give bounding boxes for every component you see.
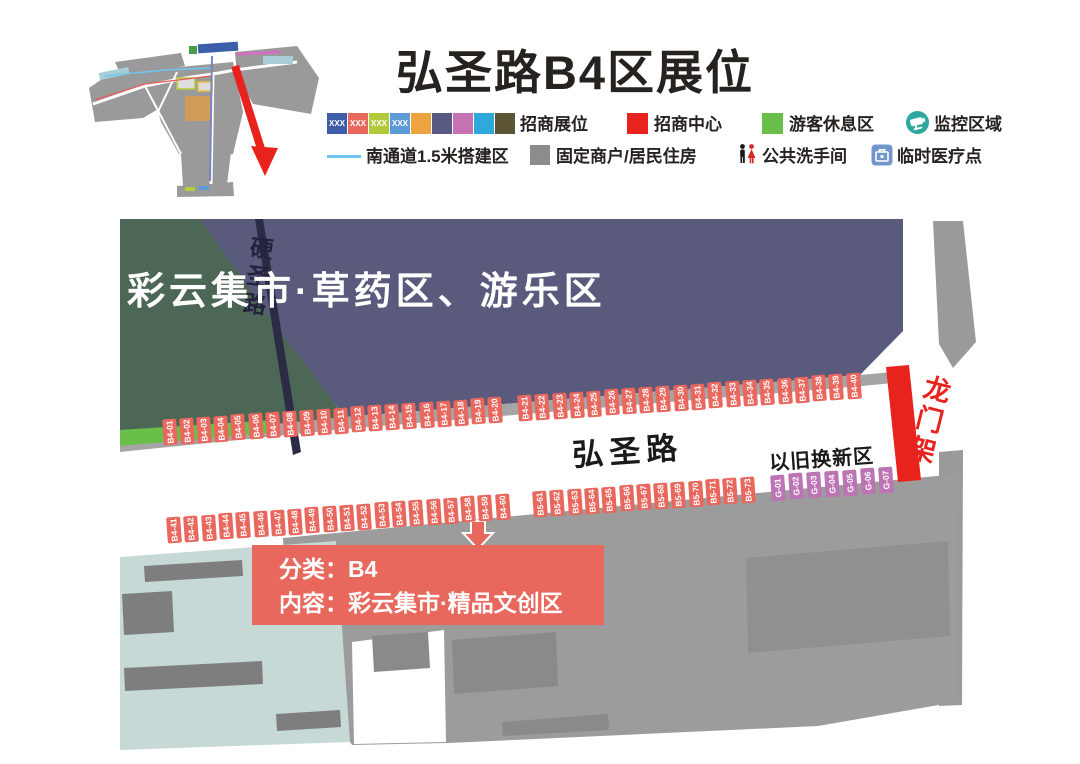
- booth-B5-62: B5-62: [549, 490, 565, 517]
- booth-label: B4-28: [640, 388, 652, 412]
- booth-G-07: G-07: [878, 467, 894, 494]
- booth-label: B4-14: [387, 405, 399, 429]
- booth-label: B4-31: [692, 385, 704, 409]
- booth-label: B4-48: [289, 510, 301, 534]
- booth-label: B4-38: [813, 377, 825, 401]
- booth-B4-41: B4-41: [166, 517, 182, 544]
- booth-B4-29: B4-29: [656, 385, 672, 412]
- booth-label: B4-12: [352, 407, 364, 431]
- booth-B5-70: B5-70: [688, 480, 704, 507]
- booth-label: B4-22: [537, 395, 549, 419]
- booth-B4-52: B4-52: [356, 503, 372, 530]
- booth-B4-24: B4-24: [569, 391, 585, 418]
- booth-label: B4-07: [267, 413, 279, 437]
- booth-B5-73: B5-73: [740, 476, 756, 503]
- booth-B4-16: B4-16: [419, 401, 435, 428]
- booth-label: B4-57: [445, 499, 457, 523]
- booth-label: B4-36: [779, 379, 791, 403]
- booth-B4-45: B4-45: [235, 512, 251, 539]
- booth-G-02: G-02: [788, 473, 804, 500]
- booth-label: B4-08: [284, 412, 296, 436]
- booth-B4-26: B4-26: [604, 389, 620, 416]
- booth-label: B4-32: [710, 384, 722, 408]
- booth-label: B4-30: [675, 386, 687, 410]
- booth-B4-55: B4-55: [408, 500, 424, 527]
- booth-G-06: G-06: [860, 468, 876, 495]
- booth-label: B5-67: [638, 485, 650, 509]
- booth-label: B4-41: [168, 518, 180, 542]
- booth-label: B4-16: [421, 403, 433, 427]
- booth-B4-20: B4-20: [487, 397, 503, 424]
- booth-label: B4-42: [186, 517, 198, 541]
- booth-B4-58: B4-58: [460, 496, 476, 523]
- booth-label: B4-15: [404, 404, 416, 428]
- booth-B4-59: B4-59: [478, 495, 494, 522]
- booth-label: B4-33: [727, 382, 739, 406]
- booth-B4-30: B4-30: [673, 384, 689, 411]
- booth-label: B4-46: [255, 512, 267, 536]
- booth-B5-67: B5-67: [636, 484, 652, 511]
- booth-label: B4-27: [623, 389, 635, 413]
- booth-label: B4-40: [848, 374, 860, 398]
- booth-B4-31: B4-31: [690, 383, 706, 410]
- booth-B4-09: B4-09: [299, 409, 315, 436]
- booth-label: G-01: [772, 478, 783, 498]
- booth-B5-66: B5-66: [619, 485, 635, 512]
- booth-B4-02: B4-02: [179, 417, 195, 444]
- booth-B4-06: B4-06: [248, 413, 264, 440]
- booth-B4-48: B4-48: [287, 508, 303, 535]
- booth-B4-51: B4-51: [339, 504, 355, 531]
- booth-G-01: G-01: [770, 474, 786, 501]
- booth-B4-33: B4-33: [725, 381, 741, 408]
- booth-B4-22: B4-22: [534, 394, 550, 421]
- right-block-upper: [933, 221, 976, 368]
- booth-label: B4-34: [744, 381, 756, 405]
- booth-label: B4-13: [369, 406, 381, 430]
- booth-B4-03: B4-03: [196, 416, 212, 443]
- booth-B4-32: B4-32: [707, 382, 723, 409]
- booth-label: B4-02: [181, 419, 193, 443]
- booth-B4-43: B4-43: [201, 514, 217, 541]
- booth-B5-71: B5-71: [705, 479, 721, 506]
- booth-label: B4-51: [341, 506, 353, 530]
- booth-label: B4-37: [796, 378, 808, 402]
- callout-category: 分类：B4: [279, 552, 604, 586]
- booth-B4-40: B4-40: [846, 373, 862, 400]
- booth-B5-61: B5-61: [532, 491, 548, 518]
- booth-B5-63: B5-63: [567, 489, 583, 516]
- booth-label: B5-62: [552, 491, 564, 515]
- booth-label: B4-58: [462, 498, 474, 522]
- booth-label: B4-11: [335, 409, 347, 432]
- booth-B4-15: B4-15: [402, 402, 418, 429]
- booth-label: B4-49: [307, 508, 319, 532]
- booth-map-poster: 弘圣路B4区展位 XXXXXXXXXXXX 招商展位 招商中心 游客休息区 监控…: [0, 0, 1080, 764]
- booth-label: B4-19: [472, 399, 484, 423]
- booth-label: B4-43: [203, 516, 215, 540]
- booth-B4-05: B4-05: [231, 414, 247, 441]
- booth-label: B4-29: [658, 387, 670, 411]
- booth-B4-49: B4-49: [305, 507, 321, 534]
- booth-G-03: G-03: [806, 472, 822, 499]
- booth-B4-14: B4-14: [384, 404, 400, 431]
- booth-label: B5-64: [586, 489, 598, 513]
- booth-B4-08: B4-08: [282, 411, 298, 438]
- booth-G-05: G-05: [842, 469, 858, 496]
- booth-B5-69: B5-69: [671, 481, 687, 508]
- booth-label: B5-61: [534, 492, 546, 516]
- booth-label: B4-52: [359, 505, 371, 529]
- booth-B4-44: B4-44: [218, 513, 234, 540]
- booth-B4-25: B4-25: [586, 390, 602, 417]
- booth-label: B4-20: [489, 398, 501, 422]
- booth-label: B4-39: [831, 375, 843, 399]
- booth-label: B4-05: [233, 416, 245, 440]
- booth-B4-46: B4-46: [253, 510, 269, 537]
- booth-B4-18: B4-18: [453, 399, 469, 426]
- booth-label: G-04: [826, 474, 837, 494]
- booth-B4-23: B4-23: [552, 392, 568, 419]
- booth-label: B4-04: [216, 417, 228, 441]
- booth-B4-11: B4-11: [333, 407, 349, 434]
- booth-label: B4-45: [237, 513, 249, 537]
- booth-B4-07: B4-07: [265, 412, 281, 439]
- booth-label: B5-68: [655, 484, 667, 508]
- booth-label: G-05: [844, 473, 855, 493]
- booth-label: B5-65: [603, 488, 615, 512]
- booth-B4-57: B4-57: [443, 497, 459, 524]
- booth-label: B5-69: [673, 483, 685, 507]
- booth-B4-53: B4-53: [374, 502, 390, 529]
- booth-label: B4-26: [606, 390, 618, 414]
- booth-B5-72: B5-72: [722, 478, 738, 505]
- booth-label: B4-60: [497, 495, 509, 519]
- booth-B5-65: B5-65: [601, 486, 617, 513]
- booth-G-04: G-04: [824, 470, 840, 497]
- booth-B4-60: B4-60: [495, 494, 511, 521]
- booth-label: B4-50: [324, 507, 336, 531]
- booth-label: G-03: [808, 475, 819, 495]
- booth-label: G-02: [790, 477, 801, 497]
- booth-B4-39: B4-39: [829, 374, 845, 401]
- booth-B4-10: B4-10: [316, 408, 332, 435]
- booth-B4-19: B4-19: [470, 398, 486, 425]
- booth-B4-34: B4-34: [742, 380, 758, 407]
- booth-label: B4-06: [250, 414, 262, 438]
- booth-B4-42: B4-42: [183, 515, 199, 542]
- booth-label: B4-25: [588, 392, 600, 416]
- booth-label: B4-03: [198, 418, 210, 442]
- booth-label: B4-55: [410, 501, 422, 525]
- booth-B4-50: B4-50: [322, 506, 338, 533]
- booth-label: B4-23: [554, 394, 566, 418]
- booth-label: B4-09: [301, 411, 313, 435]
- booth-label: B4-10: [318, 410, 330, 434]
- booth-label: B5-73: [742, 478, 754, 502]
- booth-B4-13: B4-13: [367, 405, 383, 432]
- booth-B4-17: B4-17: [436, 400, 452, 427]
- booth-label: B4-59: [480, 496, 492, 520]
- booth-B4-54: B4-54: [391, 501, 407, 528]
- booth-label: G-07: [880, 470, 891, 490]
- booth-B4-37: B4-37: [794, 376, 810, 403]
- booth-label: B5-71: [707, 480, 719, 504]
- booth-B4-21: B4-21: [517, 395, 533, 422]
- callout-content: 内容：彩云集市·精品文创区: [279, 586, 604, 620]
- booth-label: B4-35: [761, 380, 773, 404]
- booth-B4-38: B4-38: [811, 375, 827, 402]
- booth-label: B4-54: [393, 502, 405, 526]
- category-callout: 分类：B4 内容：彩云集市·精品文创区: [252, 545, 604, 625]
- booth-label: B5-66: [621, 486, 633, 510]
- booth-label: B4-56: [428, 500, 440, 524]
- booth-B4-47: B4-47: [270, 509, 286, 536]
- booth-B4-28: B4-28: [638, 387, 654, 414]
- booth-B4-04: B4-04: [213, 415, 229, 442]
- booth-label: B4-21: [519, 396, 531, 420]
- zone-title: 彩云集市·草药区、游乐区: [127, 260, 606, 315]
- booth-B4-56: B4-56: [426, 498, 442, 525]
- booth-B4-36: B4-36: [777, 377, 793, 404]
- booth-label: B4-47: [272, 511, 284, 535]
- booth-label: B4-53: [376, 504, 388, 528]
- booth-B5-68: B5-68: [653, 482, 669, 509]
- booth-label: B5-72: [725, 479, 737, 503]
- booth-label: B4-44: [220, 514, 232, 538]
- booth-B4-01: B4-01: [162, 419, 178, 446]
- booth-label: B4-18: [455, 401, 467, 425]
- booth-label: B4-01: [164, 420, 176, 444]
- booth-label: B5-63: [569, 490, 581, 514]
- booth-B4-12: B4-12: [350, 406, 366, 433]
- booth-B4-27: B4-27: [621, 388, 637, 415]
- road-label: 弘圣路: [571, 422, 685, 475]
- booth-B5-64: B5-64: [584, 487, 600, 514]
- booth-label: B5-70: [690, 482, 702, 506]
- booth-label: B4-17: [438, 402, 450, 426]
- booth-label: G-06: [862, 472, 873, 492]
- booth-B4-35: B4-35: [759, 379, 775, 406]
- booth-label: B4-24: [571, 393, 583, 417]
